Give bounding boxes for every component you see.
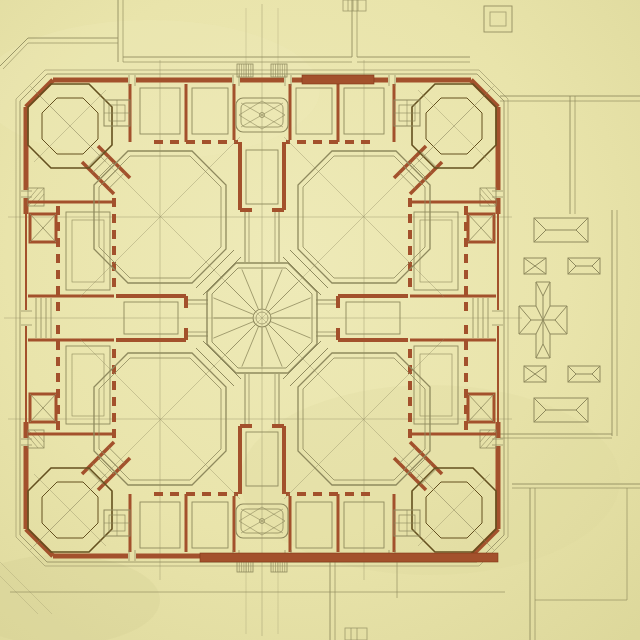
floor-plan <box>0 0 640 640</box>
drawing-sheet <box>0 0 640 640</box>
